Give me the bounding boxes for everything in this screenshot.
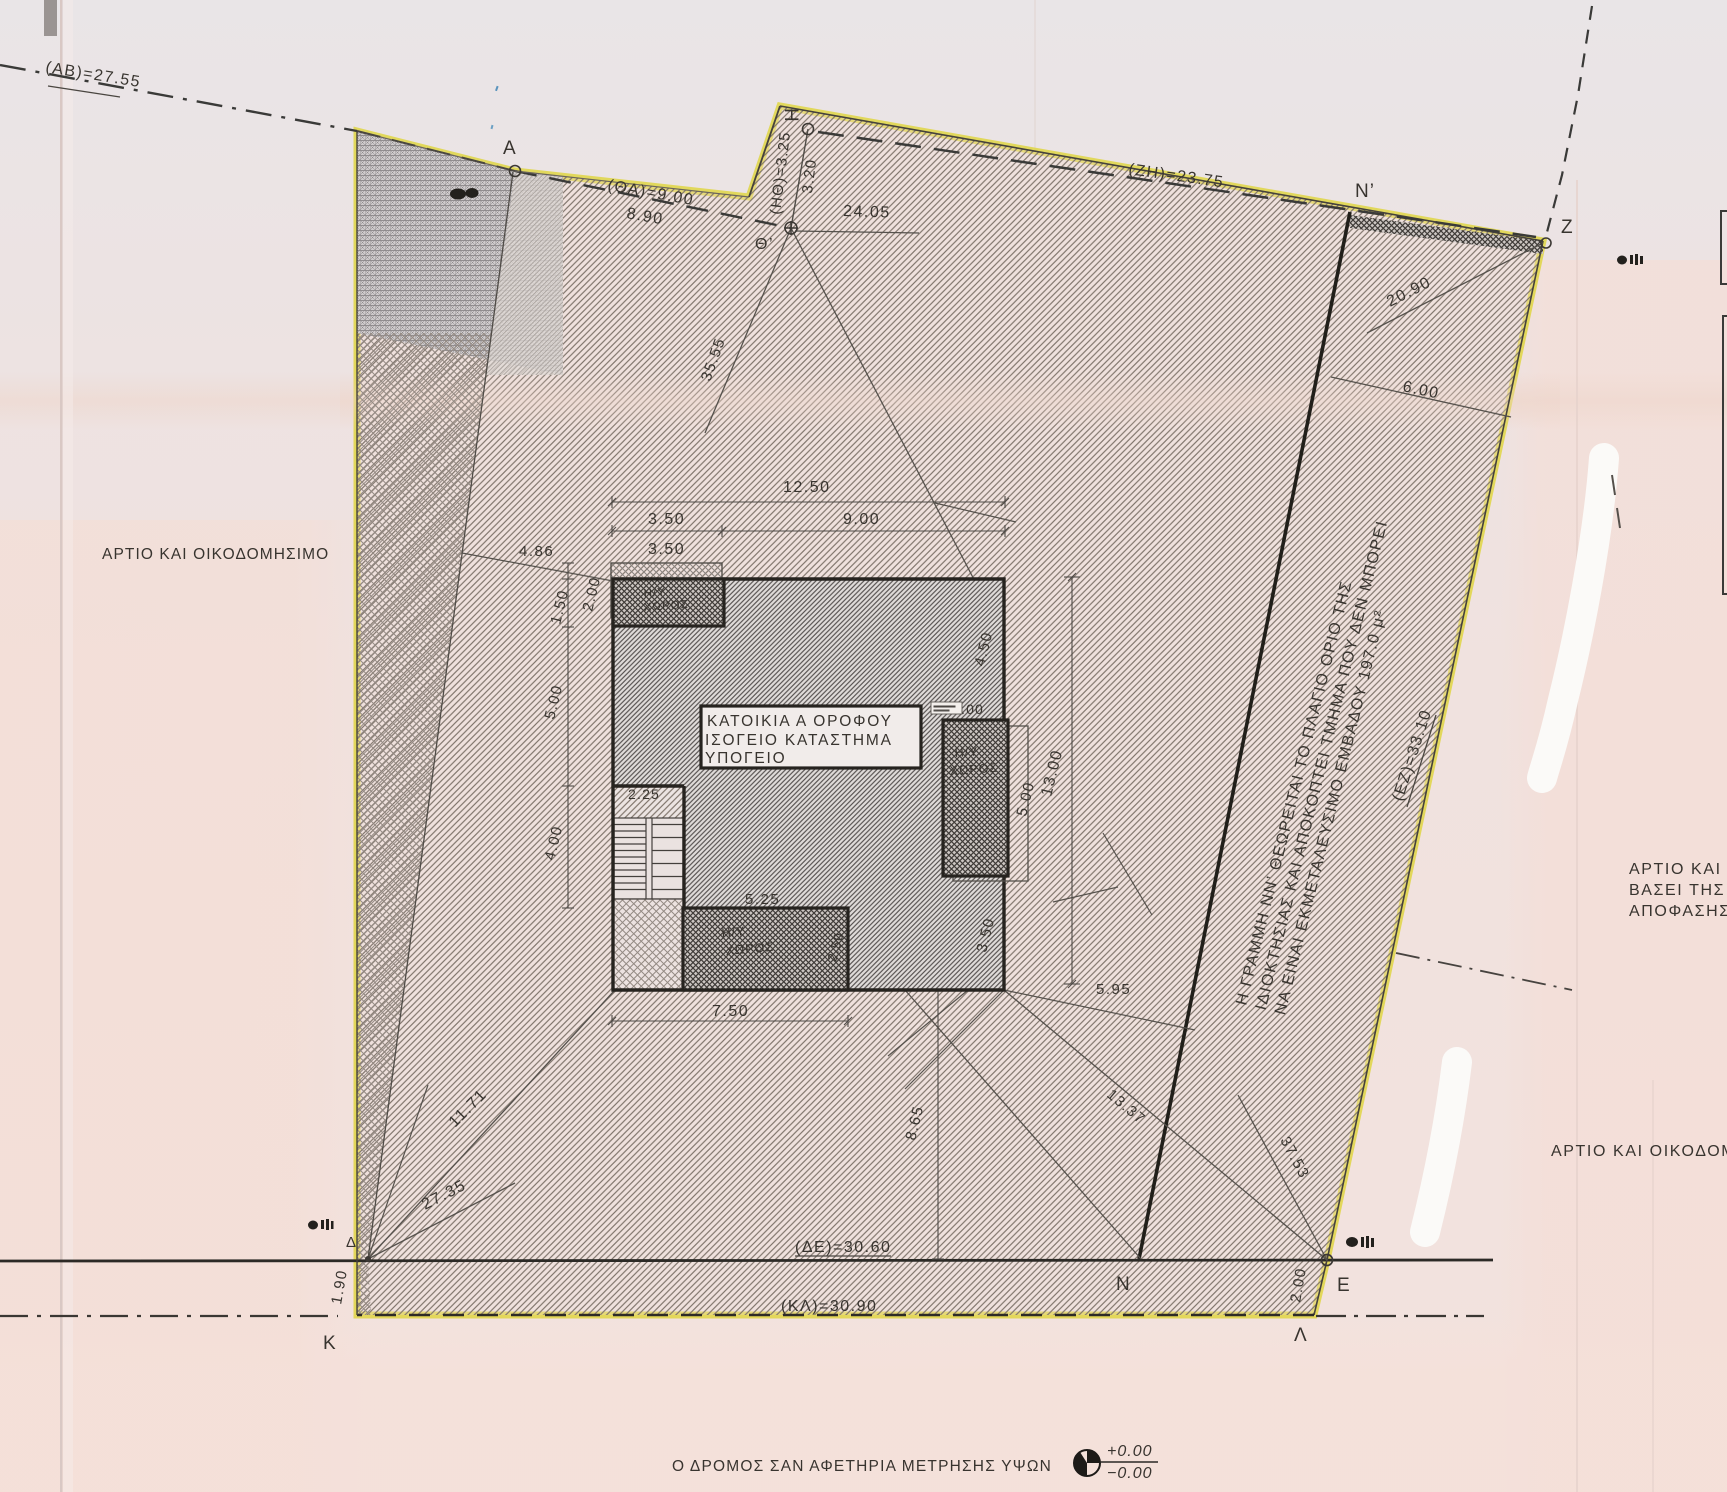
svg-text:Δ: Δ — [346, 1234, 356, 1251]
svg-text:3.50: 3.50 — [648, 511, 685, 528]
svg-text:9.00: 9.00 — [843, 511, 880, 528]
svg-text:ΙΣΟΓΕΙΟ ΚΑΤΑΣΤΗΜΑ: ΙΣΟΓΕΙΟ ΚΑΤΑΣΤΗΜΑ — [705, 732, 893, 749]
svg-text:Α: Α — [503, 138, 517, 159]
svg-text:Η: Η — [780, 108, 801, 123]
svg-text:Ν’: Ν’ — [1355, 181, 1375, 202]
svg-text:ΑΡΤΙΟ ΚΑΙ ΟΙΚΟΔΟΜΗΣΙΜΟ: ΑΡΤΙΟ ΚΑΙ ΟΙΚΟΔΟΜΗΣΙΜΟ — [102, 546, 329, 563]
svg-text:5.25: 5.25 — [745, 891, 780, 908]
svg-text:ΥΠΟΓΕΙΟ: ΥΠΟΓΕΙΟ — [705, 750, 786, 767]
svg-text:Ε: Ε — [1337, 1275, 1351, 1296]
svg-text:ΑΡΤΙΟ ΚΑΙ ΟΙΚΟΔΟΜΗ: ΑΡΤΙΟ ΚΑΙ ΟΙΚΟΔΟΜΗ — [1551, 1143, 1727, 1160]
svg-text:Ν: Ν — [1116, 1274, 1131, 1295]
svg-text:ΚΑΤΟΙΚΙΑ Α ΟΡΟΦΟΥ: ΚΑΤΟΙΚΙΑ Α ΟΡΟΦΟΥ — [707, 713, 893, 730]
svg-text:Ζ: Ζ — [1561, 217, 1574, 238]
svg-text:+0.00: +0.00 — [1107, 1443, 1152, 1460]
svg-text:3.50: 3.50 — [648, 541, 685, 558]
svg-text:(ΚΛ)=30.90: (ΚΛ)=30.90 — [781, 1298, 877, 1315]
svg-text:Η/Υ: Η/Υ — [643, 586, 666, 600]
svg-text:ΑΡΤΙΟ ΚΑΙ Ο: ΑΡΤΙΟ ΚΑΙ Ο — [1629, 861, 1727, 878]
svg-text:Η/Υ: Η/Υ — [721, 924, 746, 940]
svg-text:Ο ΔΡΟΜΟΣ ΣΑΝ ΑΦΕΤΗΡΙΑ ΜΕΤΡΗΣΗΣ: Ο ΔΡΟΜΟΣ ΣΑΝ ΑΦΕΤΗΡΙΑ ΜΕΤΡΗΣΗΣ ΥΨΩΝ — [672, 1458, 1052, 1475]
svg-text:7.50: 7.50 — [712, 1003, 749, 1020]
svg-text:−0.00: −0.00 — [1107, 1465, 1152, 1482]
svg-text:Λ: Λ — [1294, 1325, 1308, 1346]
svg-text:Θ’: Θ’ — [755, 236, 774, 253]
svg-text:(ΔΕ)=30.60: (ΔΕ)=30.60 — [795, 1239, 891, 1256]
svg-text:4.86: 4.86 — [519, 543, 554, 560]
svg-text:24.05: 24.05 — [843, 203, 891, 222]
svg-text:2.25: 2.25 — [628, 786, 660, 802]
svg-text:ΑΠΟΦΑΣΗΣ Σ: ΑΠΟΦΑΣΗΣ Σ — [1629, 903, 1727, 920]
svg-text:5.95: 5.95 — [1096, 981, 1131, 998]
svg-text:Η/Υ: Η/Υ — [954, 744, 979, 760]
svg-text:12.50: 12.50 — [783, 479, 831, 496]
svg-text:ΒΑΣΕΙ ΤΗΣ: ΒΑΣΕΙ ΤΗΣ — [1629, 882, 1725, 899]
svg-text:Κ: Κ — [323, 1333, 337, 1354]
